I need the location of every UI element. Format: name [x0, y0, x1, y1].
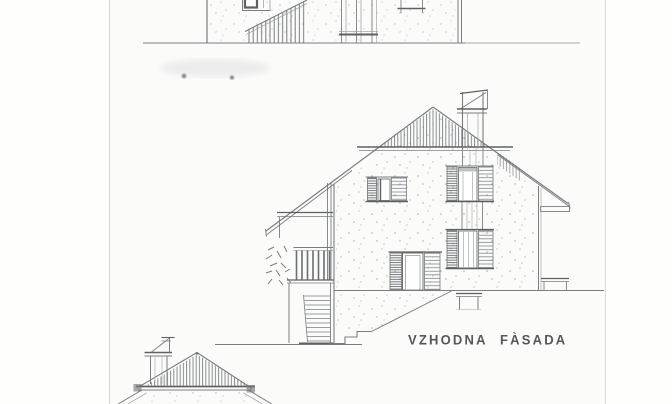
shutter-left [368, 178, 377, 201]
lower-roof-partial [119, 337, 272, 404]
stairs [299, 283, 333, 344]
tree-sketch [266, 246, 291, 285]
shutter-right [392, 178, 407, 201]
gutter [541, 207, 570, 212]
scan-smudge [160, 59, 270, 80]
balcony-balusters [297, 251, 330, 280]
east-facade-elevation [215, 90, 604, 345]
window-upper-left [366, 177, 409, 202]
shutter-left [447, 167, 457, 201]
gable-hatching [146, 355, 249, 386]
shutter-right [479, 231, 494, 269]
shutter-left [390, 253, 402, 290]
scanned-architectural-drawing: VZHODNA FÀSADA [0, 0, 672, 404]
bench-front [456, 294, 482, 310]
window-upper-right [446, 166, 495, 202]
drawing-caption: VZHODNA FÀSADA [408, 332, 567, 348]
drawing-canvas [0, 0, 672, 404]
bench-right [541, 279, 569, 291]
basement-stipple-texture [336, 292, 449, 331]
wall-edge-right [458, 0, 462, 43]
shutter-left [447, 231, 457, 269]
shutter-right [425, 253, 441, 290]
terrain-steps [329, 332, 372, 344]
window-lower-right [446, 230, 495, 269]
entrance-door [389, 252, 443, 290]
upper-elevation-partial [143, 0, 580, 80]
gable-hatching [379, 109, 488, 147]
shutter-right [479, 167, 494, 201]
